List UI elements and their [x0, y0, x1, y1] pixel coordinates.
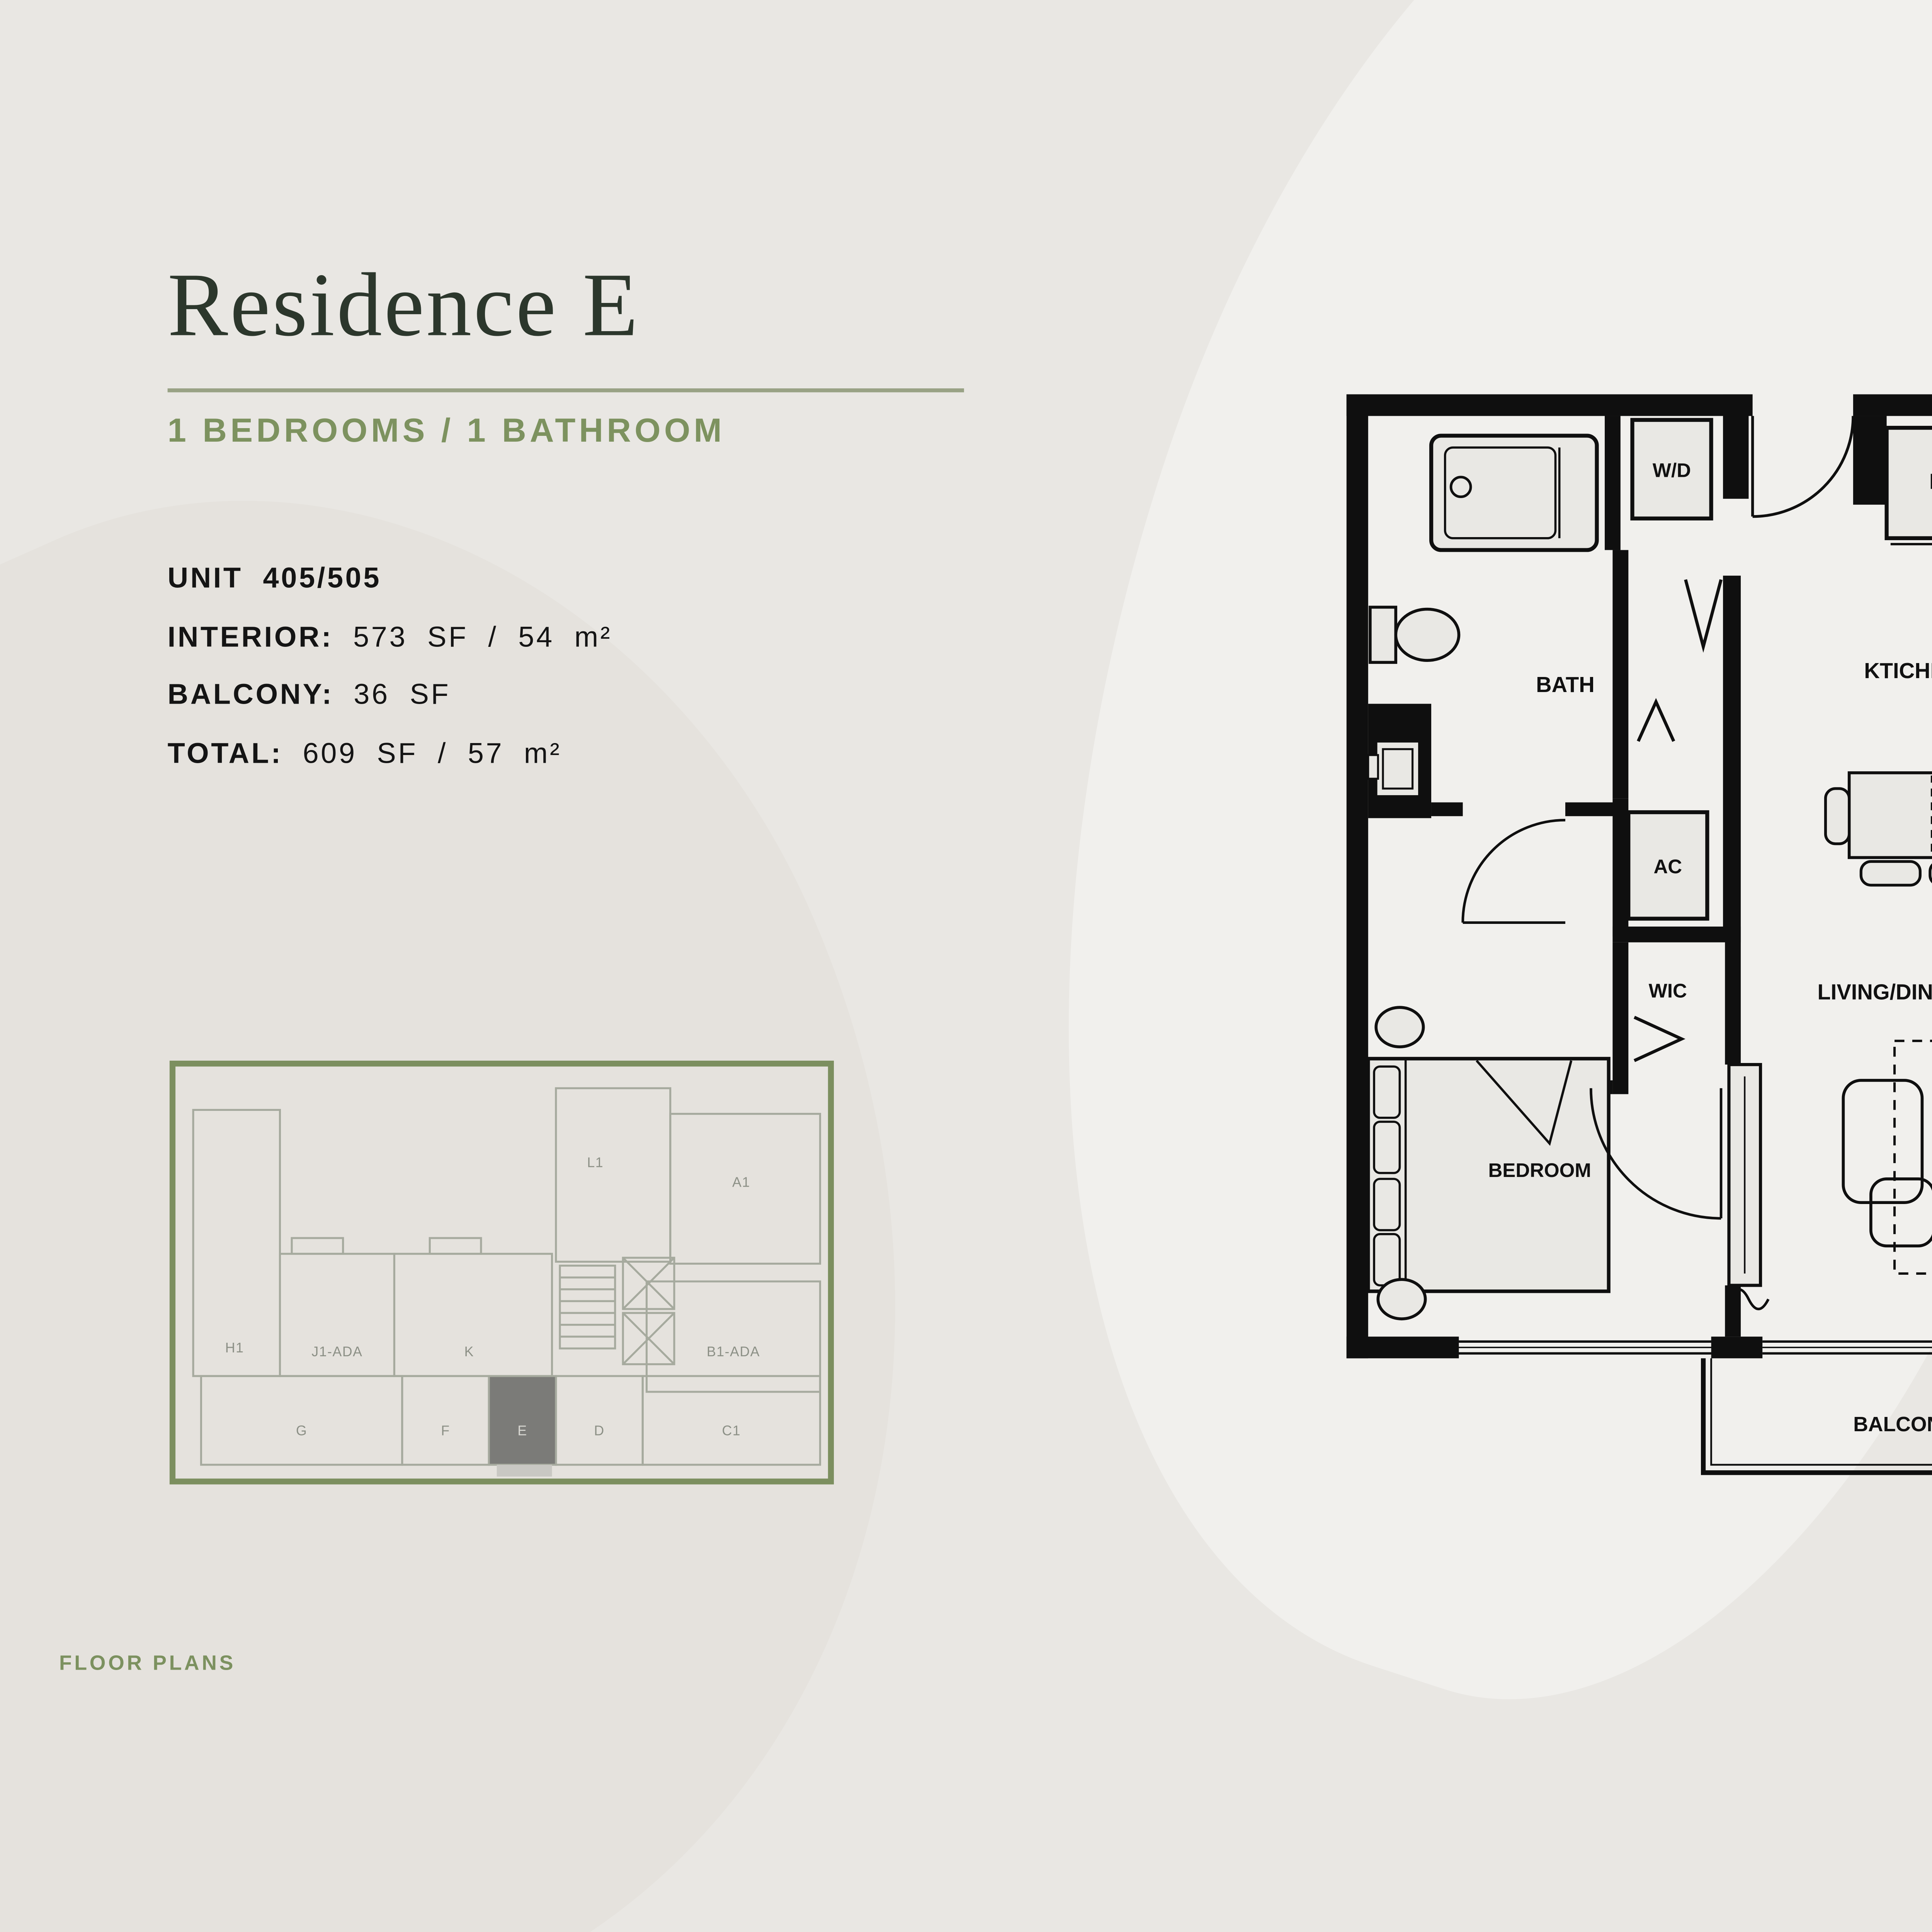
entry-door: [1753, 416, 1853, 517]
keyplan-unit-h1: [193, 1110, 280, 1376]
title-rule: [168, 388, 964, 392]
bedroom-window: [1459, 1342, 1711, 1354]
keyplan-label-d: D: [594, 1423, 604, 1438]
footer-section-label: FLOOR PLANS: [59, 1652, 236, 1675]
keyplan-unit-d: [556, 1376, 643, 1465]
keyplan-elevator-x: [623, 1313, 674, 1364]
bed-pillow: [1374, 1179, 1400, 1230]
bed-pillow: [1374, 1066, 1400, 1118]
keyplan: H1 J1-ADA K L1 A1 B1-ADA G F E D C1: [170, 1061, 834, 1485]
keyplan-label-h1: H1: [225, 1340, 244, 1355]
keyplan-notch: [292, 1238, 343, 1254]
wd-label: W/D: [1653, 459, 1691, 481]
island-stool: [1825, 789, 1849, 844]
balcony-label: BALCONY:: [168, 680, 334, 712]
keyplan-unit-f: [402, 1376, 489, 1465]
unit-value: 405/505: [263, 564, 381, 595]
keyplan-label-k: K: [464, 1344, 474, 1359]
balcony-inner-line: [1711, 1358, 1932, 1465]
bed-pillow: [1374, 1122, 1400, 1173]
interior-label: INTERIOR:: [168, 622, 333, 654]
island-chair: [1930, 862, 1932, 885]
keyplan-label-j1: J1-ADA: [311, 1344, 362, 1359]
interior-value: 573 SF / 54 m²: [353, 622, 612, 654]
area-rug: [1895, 1041, 1932, 1274]
keyplan-unit-c1: [643, 1376, 820, 1465]
wd-bifold-door: [1685, 580, 1721, 646]
page-subtitle: 1 BEDROOMS / 1 BATHROOM: [168, 412, 725, 451]
keyplan-unit-l1: [556, 1088, 670, 1262]
living-window: [1762, 1342, 1932, 1354]
unit-number-row: UNIT 405/505: [168, 564, 612, 622]
bedroom-plant: [1376, 1007, 1423, 1047]
keyplan-unit-e-highlight: [489, 1376, 556, 1465]
keyplan-label-e: E: [517, 1423, 527, 1438]
total-value: 609 SF / 57 m²: [303, 738, 561, 770]
interior-row: INTERIOR: 573 SF / 54 m²: [168, 622, 612, 680]
keyplan-unit-g: [201, 1376, 402, 1465]
total-row: TOTAL: 609 SF / 57 m²: [168, 738, 612, 797]
unit-label: UNIT: [168, 564, 243, 595]
page: Residence E 1 BEDROOMS / 1 BATHROOM UNIT…: [0, 0, 1932, 1739]
keyplan-elevator-x: [623, 1258, 674, 1309]
coffee-table: [1843, 1080, 1922, 1202]
hall-closet-door: [1638, 702, 1674, 741]
unit-info: UNIT 405/505 INTERIOR: 573 SF / 54 m² BA…: [168, 564, 612, 796]
kitchen-island: [1849, 773, 1932, 857]
bath-sink-knob: [1368, 755, 1378, 779]
bedroom-plant: [1378, 1279, 1425, 1319]
keyplan-label-a1: A1: [732, 1174, 750, 1190]
keyplan-unit-e-balcony: [497, 1465, 552, 1477]
keyplan-stair-treads: [560, 1277, 615, 1337]
keyplan-label-g: G: [296, 1423, 307, 1438]
fridge-box: [1887, 428, 1932, 538]
wic-bifold-door: [1634, 1017, 1682, 1061]
balcony-value: 36 SF: [354, 680, 451, 712]
balcony-row: BALCONY: 36 SF: [168, 680, 612, 738]
total-label: TOTAL:: [168, 738, 283, 770]
keyplan-label-l1: L1: [587, 1155, 604, 1170]
floorplan: BATH W/D AC WIC KTICHEN F DW LIVING/DINI…: [1347, 394, 1932, 1484]
bedroom-label: BEDROOM: [1488, 1159, 1591, 1181]
island-chair: [1861, 862, 1920, 885]
fridge-label: F: [1929, 469, 1932, 493]
toilet-tank: [1370, 607, 1396, 662]
keyplan-label-c1: C1: [722, 1423, 741, 1438]
living-dining-label: LIVING/DINING: [1818, 980, 1932, 1004]
wic-label: WIC: [1649, 980, 1687, 1002]
bed-pillow: [1374, 1234, 1400, 1286]
balcony-label: BALCONY: [1853, 1413, 1932, 1436]
keyplan-notch: [430, 1238, 481, 1254]
ac-label: AC: [1653, 855, 1682, 878]
bath-label: BATH: [1536, 672, 1595, 697]
keyplan-label-b1: B1-ADA: [707, 1344, 760, 1359]
kitchen-label: KTICHEN: [1864, 658, 1932, 683]
bathtub-faucet: [1451, 477, 1471, 497]
bath-door: [1463, 820, 1565, 922]
page-title: Residence E: [168, 252, 640, 357]
toilet-bowl: [1396, 609, 1459, 661]
bath-sink-basin: [1383, 749, 1413, 789]
keyplan-label-f: F: [441, 1423, 450, 1438]
